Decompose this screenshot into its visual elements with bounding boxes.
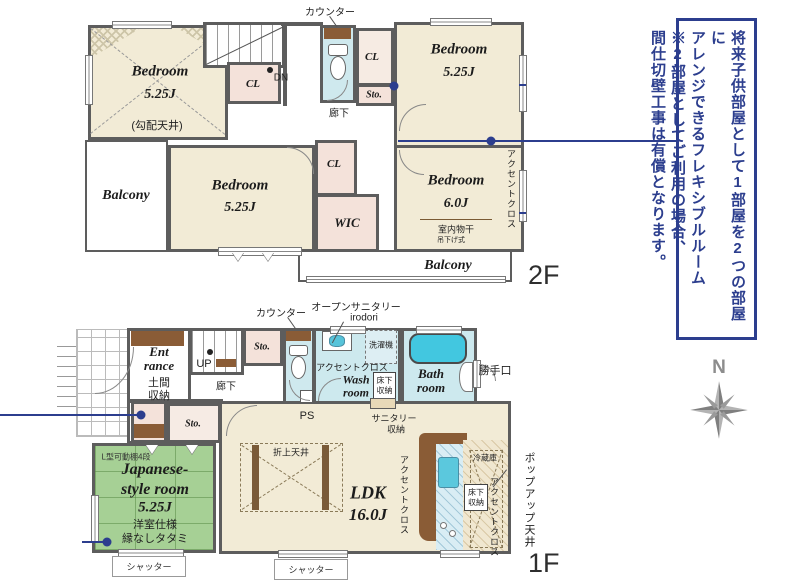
table-leg-bar [252, 445, 259, 510]
window [440, 550, 480, 558]
stove-burner [449, 530, 456, 537]
toilet-2f-counter [324, 28, 351, 39]
compass-rose-icon [689, 380, 749, 440]
storage-b-label: Sto. [366, 90, 382, 101]
open-sanitary-label: オープンサニタリー [311, 299, 400, 314]
callout-dot [487, 137, 496, 146]
compass-north-label: N [712, 357, 726, 379]
ldk-size: 16.0J [349, 505, 387, 525]
popup-ceiling-label: ポップアップ天井 [521, 452, 537, 548]
bedroom-r-drying-note2: 吊下げ式 [437, 235, 465, 245]
window [330, 326, 366, 334]
bedroom-ml-name: Bedroom [212, 178, 269, 195]
underfloor-storage-kitchen-line2: 収納 [465, 498, 487, 508]
sliding-window-mark [262, 252, 274, 261]
shutter-box-left: シャッター [112, 556, 186, 577]
hallway-label-1f: 廊下 [216, 378, 236, 393]
window [519, 170, 527, 222]
floor-label-2f: 2F [528, 260, 560, 291]
underfloor-storage-kitchen-line1: 床下 [465, 488, 487, 498]
counter-label-1f: カウンター [256, 305, 306, 320]
window [218, 247, 302, 256]
bedroom-r-size: 6.0J [444, 196, 469, 212]
callout-line [398, 140, 676, 142]
closet-a-label: CL [246, 78, 260, 90]
stairs-1f-tread [216, 359, 236, 367]
bedroom-tl-name: Bedroom [132, 64, 189, 81]
sanitary-storage-nub [370, 398, 396, 409]
entrance-name2: rance [144, 358, 174, 374]
shutter-box-center: シャッター [274, 559, 348, 580]
toilet-1f-bowl [289, 345, 308, 356]
toilet-1f-seat [291, 356, 306, 379]
stairs-up-label: UP [196, 358, 211, 370]
window [430, 18, 492, 26]
window [416, 326, 462, 334]
japanese-room-name2: style room [121, 481, 189, 499]
bedroom-r-drying-note: 室内物干 [438, 223, 474, 236]
stairs-up-dot [207, 349, 213, 355]
window [278, 550, 348, 558]
bedroom-tr-size: 5.25J [443, 65, 475, 81]
sanitary-storage-label2: 収納 [387, 423, 405, 436]
floor-label-1f: 1F [528, 548, 560, 579]
bedroom-tr-name: Bedroom [431, 42, 488, 59]
window [112, 21, 172, 29]
accent-wall-label-right: アクセントクロス [488, 477, 501, 557]
wall-patch [127, 399, 223, 403]
bath-room-name2: room [417, 380, 445, 396]
japanese-room-note2: 縁なしタタミ [122, 530, 188, 546]
stairs-down-label: DN [274, 73, 288, 84]
entrance-storage2: 収納 [148, 387, 170, 403]
window-tick [519, 212, 526, 214]
callout-line [0, 414, 141, 416]
hallway-label-2f: 廊下 [329, 105, 349, 120]
sliding-door-mark [186, 445, 198, 454]
storage-b-label-1f: Sto. [185, 419, 201, 430]
callout-dot [390, 82, 399, 91]
window [85, 55, 93, 105]
wall-patch [281, 22, 323, 26]
bedroom-r-name: Bedroom [428, 173, 485, 190]
bedroom-ml-size: 5.25J [224, 200, 256, 216]
sliding-window-mark [232, 252, 244, 261]
callout-dot [137, 411, 146, 420]
wic-label: WIC [334, 215, 359, 231]
closet-b-label: CL [365, 51, 379, 63]
balcony-bottom-label: Balcony [424, 258, 471, 274]
note-line-2: アレンジできるフレキシブルルーム [687, 30, 707, 328]
flexible-room-note: 将来子供部屋として1部屋を2つの部屋に アレンジできるフレキシブルルーム ※2部… [676, 18, 757, 340]
note-line-3: ※2部屋としてご利用の場合、 [667, 30, 687, 328]
bath-door [459, 362, 473, 392]
toilet-1f-counter [286, 331, 311, 341]
kitchen-sink [438, 457, 459, 488]
accent-wall-label-2f: アクセントクロス [505, 149, 518, 229]
underfloor-storage-kitchen-box: 床下 収納 [464, 484, 488, 511]
stove-burner [440, 522, 447, 529]
open-sanitary-sub: irodori [350, 313, 378, 324]
balcony-left-label: Balcony [102, 188, 149, 204]
note-line-1: 将来子供部屋として1部屋を2つの部屋に [707, 30, 747, 328]
bathtub [409, 333, 467, 364]
floor-plan-canvas: カウンター Bedroom 5.25J (勾配天井) CL DN 廊下 CL S… [0, 0, 800, 585]
ldk-name: LDK [350, 483, 386, 504]
toilet-2f-bowl [328, 44, 348, 56]
stairs-down-dot [267, 67, 273, 73]
coffered-ceiling-label: 折上天井 [273, 446, 309, 459]
window [91, 495, 99, 542]
fridge-label: 冷蔵庫 [473, 453, 497, 464]
drying-underline [420, 219, 492, 220]
table-leg-bar [322, 445, 329, 510]
underfloor-storage-wash-box: 床下 収納 [373, 372, 396, 400]
window-tick [519, 84, 526, 86]
washer-label: 洗濯機 [369, 340, 393, 351]
ps-label: PS [300, 410, 315, 422]
closet-c-label: CL [327, 158, 341, 170]
shutter-left-label: シャッター [126, 560, 171, 573]
callout-dot [103, 538, 112, 547]
note-line-4: 間仕切壁工事は有償となります。 [647, 30, 667, 328]
porch-steps [57, 341, 76, 407]
bedroom-tl-ceiling-note: (勾配天井) [131, 117, 182, 133]
balcony-bottom-rail [306, 276, 506, 283]
underfloor-storage-wash-line2: 収納 [374, 386, 395, 396]
wall-patch [283, 22, 287, 106]
bedroom-tl-size: 5.25J [144, 87, 176, 103]
kitchen-counter-side [419, 433, 436, 541]
underfloor-storage-wash-line1: 床下 [374, 376, 395, 386]
back-door-label: 勝手口 [479, 362, 512, 378]
entrance-shoe-shelf-bottom [134, 424, 164, 438]
japanese-room-name1: Japanese- [122, 461, 189, 479]
wash-room-name2: room [343, 386, 369, 401]
japanese-room-size: 5.25J [138, 500, 172, 517]
storage-a-label: Sto. [254, 342, 270, 353]
accent-wall-label-kitchen: アクセントクロス [398, 455, 411, 535]
shutter-center-label: シャッター [288, 563, 333, 576]
toilet-2f-seat [330, 56, 346, 80]
